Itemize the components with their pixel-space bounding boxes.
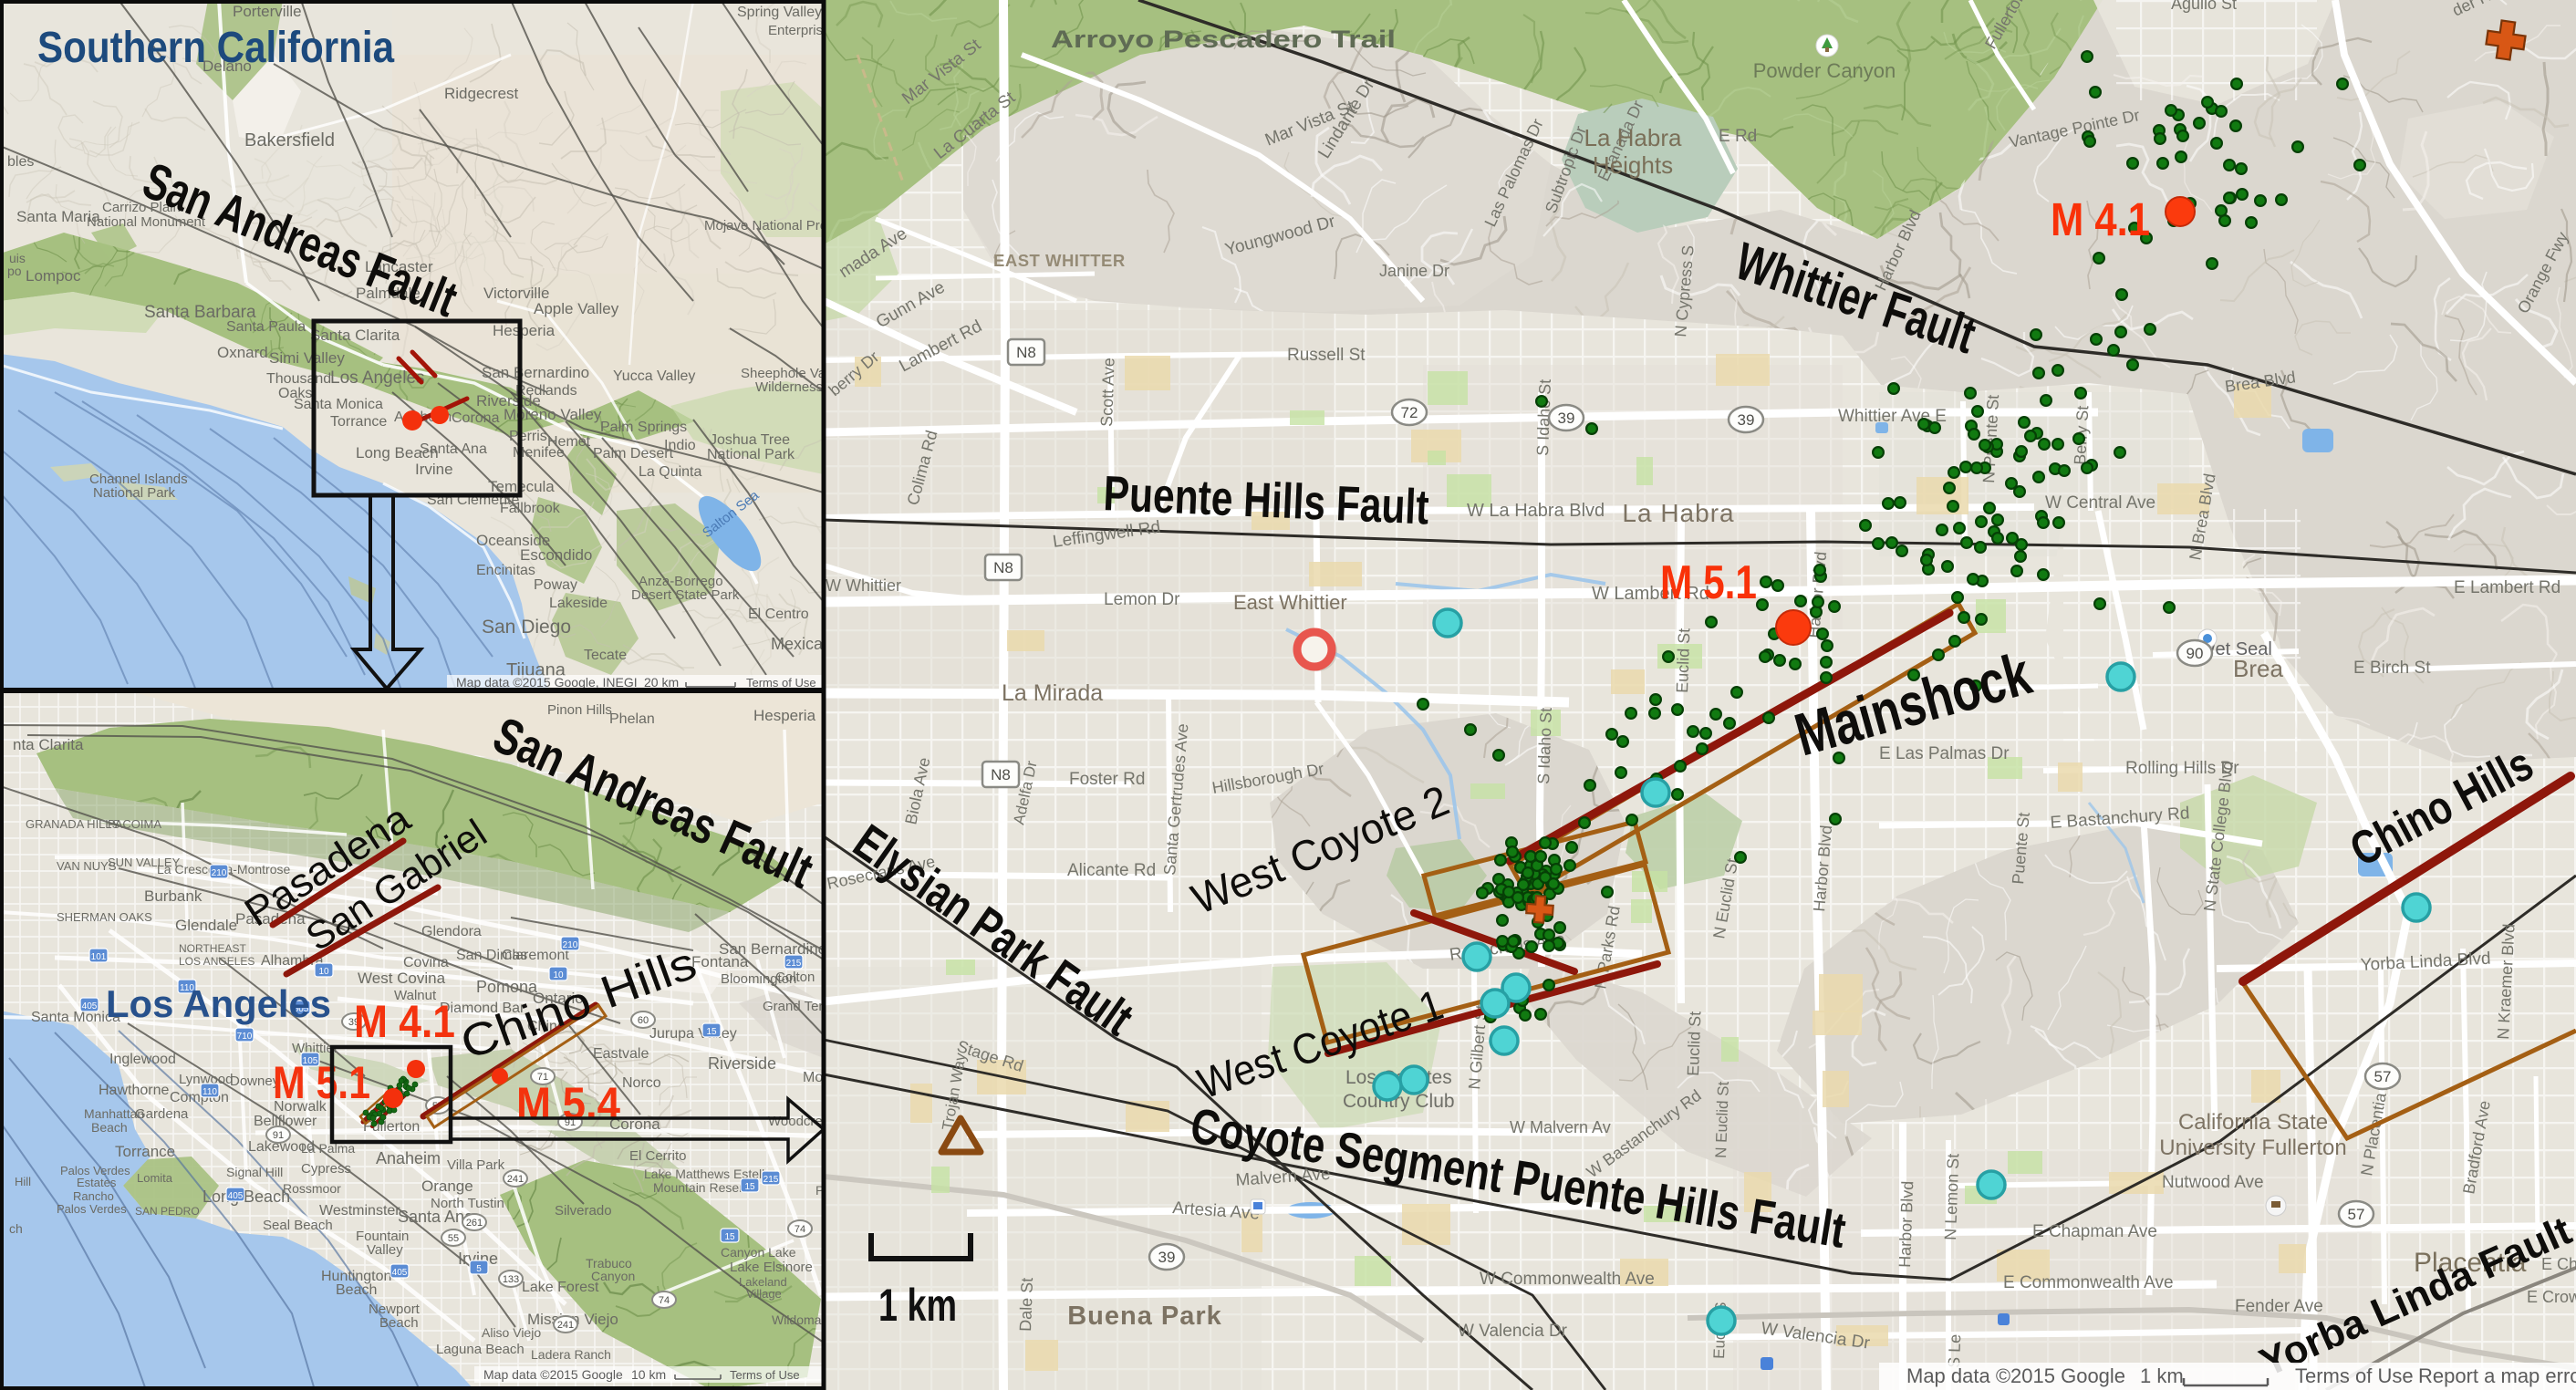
svg-text:Burbank: Burbank [144,887,203,905]
svg-text:Desert State Park: Desert State Park [631,587,740,603]
svg-text:Buena Park: Buena Park [1067,1302,1222,1331]
svg-text:Poway: Poway [534,577,577,593]
svg-text:Russell St: Russell St [1287,346,1366,365]
svg-text:210: 210 [212,868,227,878]
svg-text:Heights: Heights [1593,151,1673,179]
svg-text:E Commonwealth Ave: E Commonwealth Ave [2003,1273,2174,1292]
svg-text:Canyon Lake: Canyon Lake [721,1245,796,1260]
svg-text:Anaheim: Anaheim [376,1149,441,1167]
svg-text:North Tustin: North Tustin [431,1196,504,1211]
svg-text:San Diego: San Diego [482,617,571,638]
svg-text:261: 261 [466,1218,483,1229]
svg-text:Lake Forest: Lake Forest [522,1280,599,1295]
svg-text:Westminster: Westminster [319,1203,400,1219]
svg-text:E Birch St: E Birch St [2353,659,2431,678]
svg-text:Map data ©2015 Google: Map data ©2015 Google [483,1367,623,1382]
svg-text:Rossmoor: Rossmoor [283,1181,341,1196]
svg-text:Pinon Hills: Pinon Hills [547,702,612,718]
svg-text:Powder Canyon: Powder Canyon [1753,59,1896,82]
svg-text:Torrance: Torrance [115,1143,175,1160]
svg-text:Hemet: Hemet [547,434,591,450]
svg-text:Palm Springs: Palm Springs [600,420,687,435]
svg-text:Santa Monica: Santa Monica [294,397,383,412]
svg-text:Los Angeles: Los Angeles [106,982,331,1025]
svg-text:10 km: 10 km [631,1367,666,1382]
svg-text:Foster Rd: Foster Rd [1069,770,1145,789]
svg-text:15: 15 [706,1027,717,1037]
svg-text:S Idaho St: S Idaho St [1534,707,1555,784]
svg-text:bles: bles [7,154,34,170]
svg-text:N Lemon St: N Lemon St [1941,1153,1962,1240]
svg-text:Mexicali: Mexicali [771,635,830,653]
svg-text:Inglewood: Inglewood [109,1052,176,1067]
svg-text:Glendora: Glendora [421,924,482,939]
svg-text:University Fullerton: University Fullerton [2159,1136,2346,1160]
svg-text:74: 74 [659,1295,670,1306]
svg-text:Canyon: Canyon [591,1269,635,1283]
svg-text:Enterprise: Enterprise [768,23,830,38]
svg-text:LOS ANGELES: LOS ANGELES [179,955,254,968]
svg-text:Valley: Valley [367,1242,403,1258]
svg-text:La Mirada: La Mirada [1002,680,1103,706]
svg-text:Thousand: Thousand [266,371,331,387]
svg-text:Compton: Compton [170,1090,229,1105]
svg-text:N8: N8 [993,559,1013,576]
svg-text:Spring Valley: Spring Valley [737,5,822,20]
svg-text:241: 241 [557,1320,574,1331]
svg-text:Arroyo Pescadero Trail: Arroyo Pescadero Trail [1051,26,1396,53]
svg-text:Escondido: Escondido [520,546,592,564]
svg-text:Manhattan: Manhattan [84,1106,144,1121]
svg-text:National Park: National Park [707,447,795,462]
svg-text:5: 5 [476,1264,482,1274]
svg-text:Fontana: Fontana [691,953,749,970]
svg-text:Laguna Beach: Laguna Beach [436,1342,525,1357]
svg-text:Yucca Valley: Yucca Valley [613,368,695,384]
svg-text:10: 10 [553,970,564,980]
svg-text:Lemon Dr: Lemon Dr [1104,590,1180,609]
svg-text:M 5.1: M 5.1 [1660,556,1757,609]
svg-text:Signal Hill: Signal Hill [226,1165,283,1179]
svg-text:Wildomar: Wildomar [772,1312,826,1327]
svg-text:215: 215 [763,1175,779,1185]
svg-text:W Valencia Dr: W Valencia Dr [1458,1322,1568,1341]
svg-text:Silverado: Silverado [555,1203,612,1219]
svg-text:Joshua Tree: Joshua Tree [710,432,790,448]
svg-text:Hesperia: Hesperia [753,707,816,724]
svg-text:M 5.1: M 5.1 [273,1057,370,1108]
svg-text:N Euclid St: N Euclid St [1712,1081,1732,1158]
svg-text:SAN PEDRO: SAN PEDRO [135,1205,200,1218]
svg-text:Santa Paula: Santa Paula [226,319,306,335]
svg-text:55: 55 [448,1233,459,1244]
svg-text:N8: N8 [1016,344,1036,361]
svg-text:EAST WHITTER: EAST WHITTER [993,251,1126,270]
svg-text:California State: California State [2178,1110,2328,1135]
svg-text:Fender Ave: Fender Ave [2235,1297,2323,1316]
svg-text:710: 710 [237,1032,253,1042]
svg-text:Estates: Estates [77,1176,117,1189]
svg-text:Dale St: Dale St [1016,1277,1036,1332]
svg-text:Riverside: Riverside [708,1054,776,1073]
svg-text:Santa Ana: Santa Ana [420,441,487,457]
svg-text:241: 241 [507,1174,524,1185]
svg-text:39: 39 [1158,1249,1176,1266]
svg-text:Map data ©2015 Google, INEGI: Map data ©2015 Google, INEGI [456,675,638,690]
svg-text:San Bernardino: San Bernardino [482,364,589,381]
svg-text:57: 57 [2374,1068,2392,1085]
svg-text:SHERMAN OAKS: SHERMAN OAKS [57,910,152,924]
svg-text:Encinitas: Encinitas [476,563,535,578]
svg-text:West Covina: West Covina [358,970,446,987]
svg-text:Harbor Blvd: Harbor Blvd [1896,1180,1916,1268]
svg-text:Phelan: Phelan [609,711,655,727]
svg-text:Lakeside: Lakeside [549,596,608,611]
svg-text:W La Habra Blvd: W La Habra Blvd [1467,501,1605,521]
svg-text:Terms of Use: Terms of Use [746,676,816,690]
svg-text:Mojave National Pres: Mojave National Pres [704,218,835,233]
svg-text:W Whittier: W Whittier [826,576,901,595]
svg-text:Scott Ave: Scott Ave [1097,358,1118,427]
svg-text:Southern California: Southern California [37,24,394,72]
svg-text:E Las Palmas Dr: E Las Palmas Dr [1879,744,2010,763]
svg-text:Claremont: Claremont [502,948,569,963]
svg-text:Village: Village [746,1287,782,1301]
svg-text:Lomita: Lomita [137,1171,173,1185]
svg-text:Euclid St: Euclid St [1684,1011,1704,1076]
svg-text:N8: N8 [991,766,1011,783]
svg-text:Alicante Rd: Alicante Rd [1067,861,1156,880]
svg-text:Janine Dr: Janine Dr [1379,262,1449,280]
svg-text:Euclid St: Euclid St [1673,628,1693,693]
svg-text:215: 215 [786,959,802,969]
svg-text:Map data ©2015 Google: Map data ©2015 Google [1906,1364,2125,1387]
svg-text:M 5.4: M 5.4 [516,1078,620,1129]
svg-text:Porterville: Porterville [233,3,302,20]
svg-text:Bellflower: Bellflower [254,1114,317,1129]
svg-text:Colton: Colton [775,970,815,985]
svg-text:E Rd: E Rd [1719,127,1757,146]
svg-text:Palm Desert: Palm Desert [593,446,674,462]
svg-text:Beach: Beach [379,1315,419,1331]
svg-text:E Crowthe: E Crowthe [2527,1288,2576,1306]
svg-text:Apple Valley: Apple Valley [534,300,619,317]
svg-text:405: 405 [82,1001,98,1011]
svg-text:90: 90 [2186,645,2204,662]
svg-text:405: 405 [392,1268,408,1278]
svg-text:M 4.1: M 4.1 [2051,193,2150,245]
svg-text:ch: ch [9,1221,23,1236]
svg-text:GRANADA HILLS: GRANADA HILLS [26,817,120,831]
svg-text:Lake Elsinore: Lake Elsinore [730,1260,813,1275]
svg-text:M 4.1: M 4.1 [354,996,455,1047]
svg-text:Nutwood Ave: Nutwood Ave [2162,1173,2264,1192]
svg-text:57: 57 [2348,1206,2365,1223]
svg-text:La Quinta: La Quinta [639,464,701,480]
svg-text:Hill: Hill [15,1175,31,1188]
svg-text:39: 39 [1738,411,1755,429]
svg-text:Aguilo St: Aguilo St [2171,0,2237,13]
svg-text:po: po [7,264,22,278]
svg-text:110: 110 [203,1087,217,1097]
svg-text:15: 15 [724,1232,735,1242]
svg-text:Terms of Use: Terms of Use [730,1368,800,1382]
svg-text:60: 60 [638,1015,649,1026]
svg-text:NORTHEAST: NORTHEAST [179,942,246,955]
svg-text:Report a map error: Report a map error [2418,1364,2576,1387]
svg-text:La Habra: La Habra [1584,124,1682,151]
svg-text:Beach: Beach [91,1120,128,1135]
svg-text:E Chapman Ave: E Chapman Ave [2032,1222,2157,1241]
svg-text:Simi Valley: Simi Valley [269,349,345,367]
svg-text:Oxnard: Oxnard [217,344,268,361]
svg-text:La Habra: La Habra [1622,499,1734,527]
svg-text:Eastvale: Eastvale [593,1046,649,1062]
svg-text:Cypress: Cypress [301,1161,351,1177]
svg-text:Covina: Covina [403,955,449,970]
svg-text:Rancho: Rancho [73,1189,114,1203]
svg-text:15: 15 [744,1182,755,1192]
svg-text:Perris: Perris [509,429,547,444]
svg-text:Ladera Ranch: Ladera Ranch [531,1347,611,1362]
svg-text:10: 10 [318,967,329,977]
svg-text:East Whittier: East Whittier [1233,591,1347,614]
svg-text:Aliso Viejo: Aliso Viejo [482,1325,541,1340]
svg-text:20 km: 20 km [644,675,679,690]
svg-text:74: 74 [795,1224,805,1235]
svg-text:Long Beach: Long Beach [203,1188,290,1206]
svg-text:Palos Verdes: Palos Verdes [57,1202,127,1216]
svg-text:Brea: Brea [2233,655,2283,682]
svg-text:101: 101 [91,952,107,962]
svg-text:E Lambert Rd: E Lambert Rd [2454,578,2560,597]
svg-text:133: 133 [503,1274,519,1285]
svg-text:Glendale: Glendale [175,917,237,934]
svg-text:Indio: Indio [664,438,696,453]
svg-text:72: 72 [1401,404,1418,421]
svg-text:210: 210 [563,940,578,950]
svg-text:Irvine: Irvine [415,461,453,478]
svg-text:1 km: 1 km [878,1280,957,1331]
svg-text:W Central Ave: W Central Ave [2045,493,2155,513]
svg-text:405: 405 [228,1191,244,1201]
svg-text:Wilderness: Wilderness [755,379,823,395]
svg-text:El Cerrito: El Cerrito [629,1148,687,1164]
svg-text:El Centro: El Centro [748,607,809,622]
svg-text:91: 91 [273,1130,284,1141]
svg-text:39: 39 [1558,410,1575,427]
svg-text:Norco: Norco [622,1075,661,1091]
svg-text:Beach: Beach [336,1282,377,1298]
svg-text:Villa Park: Villa Park [447,1157,505,1173]
svg-text:Seal Beach: Seal Beach [263,1218,333,1233]
svg-text:Terms of Use: Terms of Use [2295,1364,2414,1387]
svg-text:Lompoc: Lompoc [26,267,81,285]
svg-text:W Commonwealth Ave: W Commonwealth Ave [1480,1270,1655,1289]
svg-text:Torrance: Torrance [330,414,387,430]
svg-text:W Malvern Av: W Malvern Av [1510,1118,1611,1136]
svg-text:National Park: National Park [93,485,176,501]
svg-text:Hesperia: Hesperia [493,322,556,339]
svg-text:Tecate: Tecate [584,648,627,663]
svg-text:Hawthorne: Hawthorne [99,1083,169,1098]
svg-text:Santa Clarita: Santa Clarita [310,327,400,344]
svg-text:PACOIMA: PACOIMA [108,817,161,831]
svg-text:Corona: Corona [452,410,500,426]
svg-text:nta Clarita: nta Clarita [13,736,84,753]
svg-text:Orange: Orange [421,1177,473,1195]
svg-text:Ridgecrest: Ridgecrest [444,85,519,102]
svg-text:Jurupa Valley: Jurupa Valley [649,1026,737,1042]
svg-text:Bakersfield: Bakersfield [244,130,335,150]
svg-text:1 km: 1 km [2140,1364,2184,1387]
